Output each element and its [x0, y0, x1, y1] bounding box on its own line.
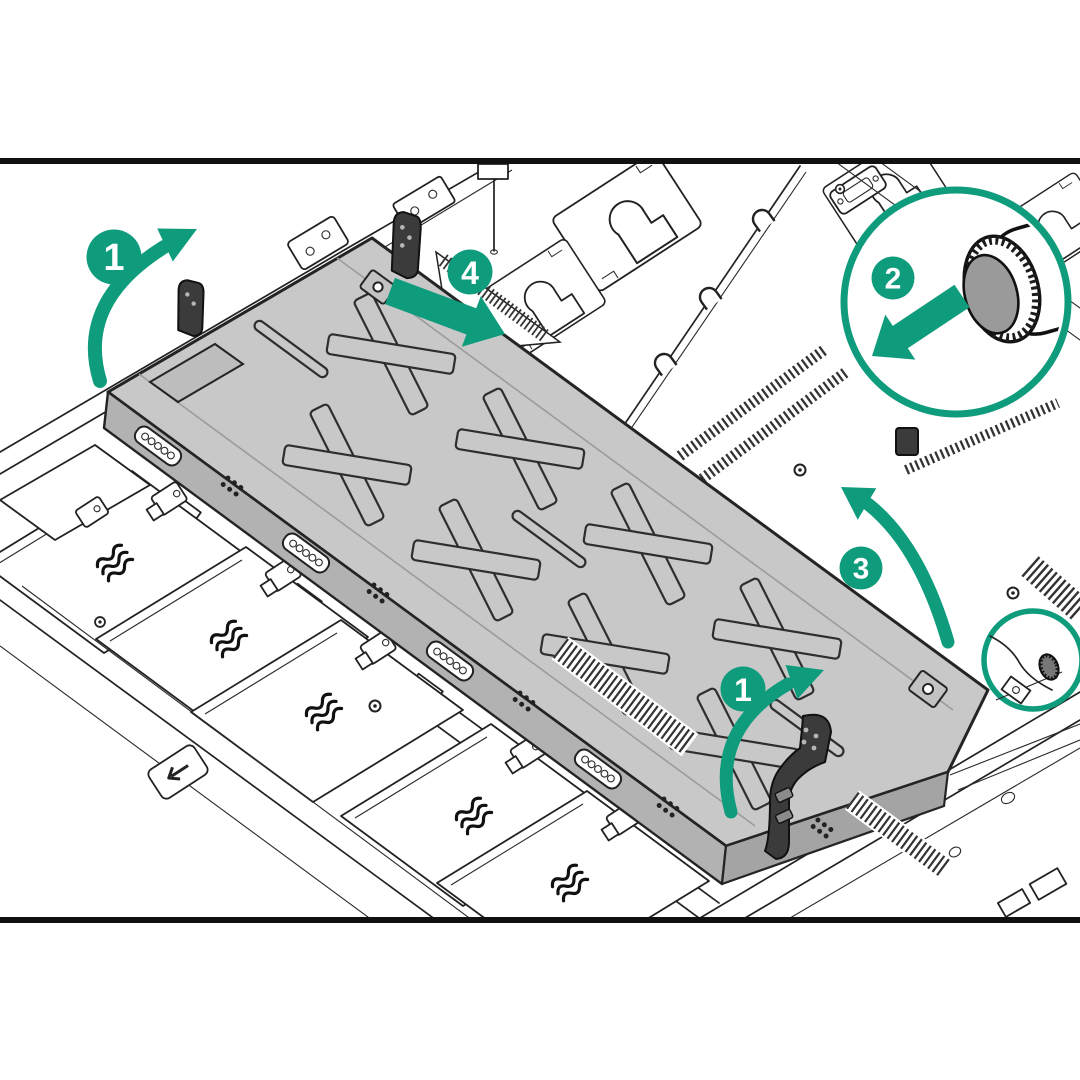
latch-left [172, 278, 210, 338]
callout-step-1-right: 1 [721, 667, 766, 712]
callout-label: 4 [461, 255, 479, 291]
unlock-arrow-plate [146, 743, 210, 801]
chassis-thumbscrew [1036, 652, 1062, 683]
figure-canvas: 2 1 4 [0, 0, 1080, 1080]
heatsink-fins [1030, 566, 1080, 610]
callout-step-2: 2 [872, 257, 915, 300]
figure: 2 1 4 [0, 0, 1080, 1080]
callout-label: 1 [734, 672, 752, 708]
callout-step-1-left: 1 [87, 230, 142, 285]
callout-step-3: 3 [840, 547, 883, 590]
highlight-circle [984, 611, 1080, 709]
callout-label: 2 [885, 263, 902, 296]
callout-label: 3 [853, 553, 870, 586]
callout-label: 1 [103, 237, 124, 279]
top-connector [478, 164, 508, 179]
top-rule [0, 158, 1080, 164]
latch-top [386, 210, 426, 279]
callout-step-4: 4 [448, 250, 493, 295]
bottom-rule [0, 917, 1080, 923]
